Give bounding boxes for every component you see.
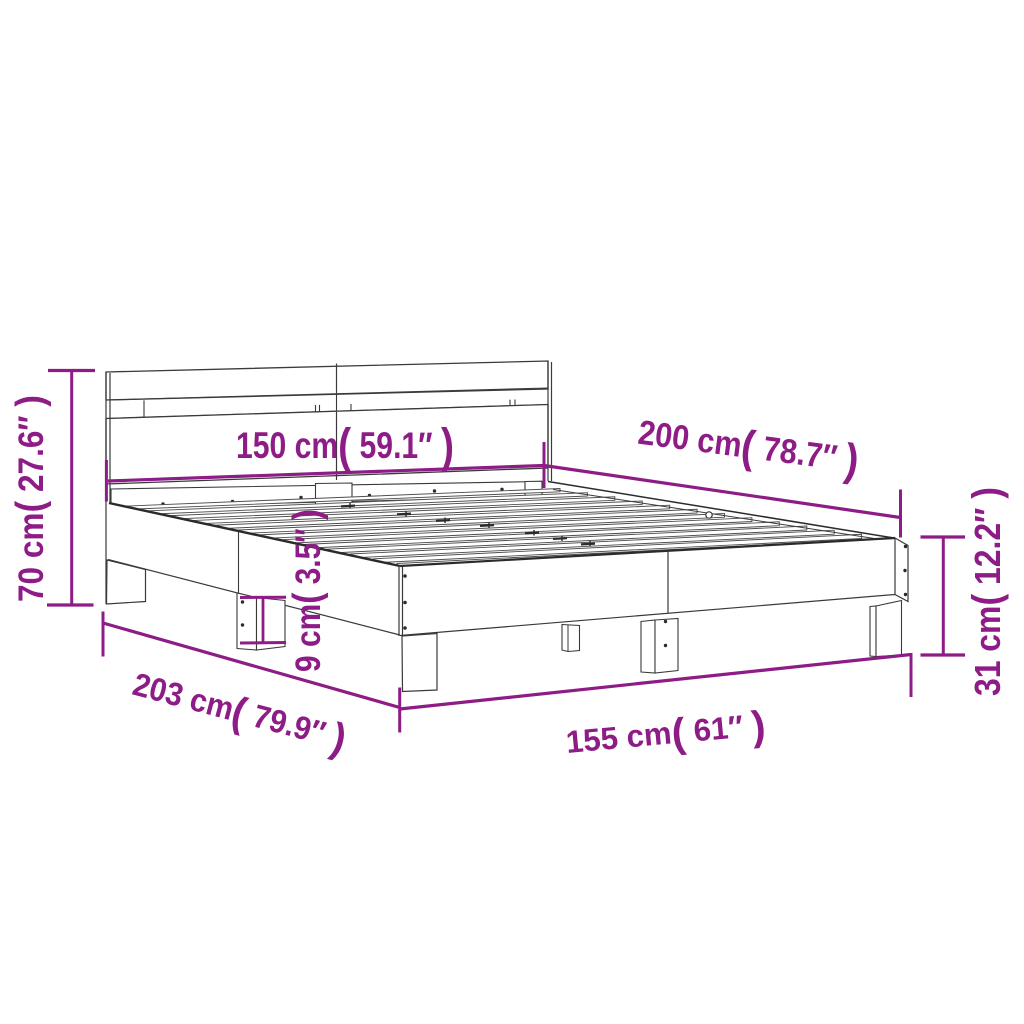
svg-text:9 cm( 3.5″ ): 9 cm( 3.5″ ) [286, 509, 329, 672]
svg-text:70 cm( 27.6″ ): 70 cm( 27.6″ ) [9, 395, 52, 602]
svg-text:150 cm( 59.1″ ): 150 cm( 59.1″ ) [236, 420, 454, 473]
svg-text:31 cm( 12.2″ ): 31 cm( 12.2″ ) [965, 487, 1009, 696]
